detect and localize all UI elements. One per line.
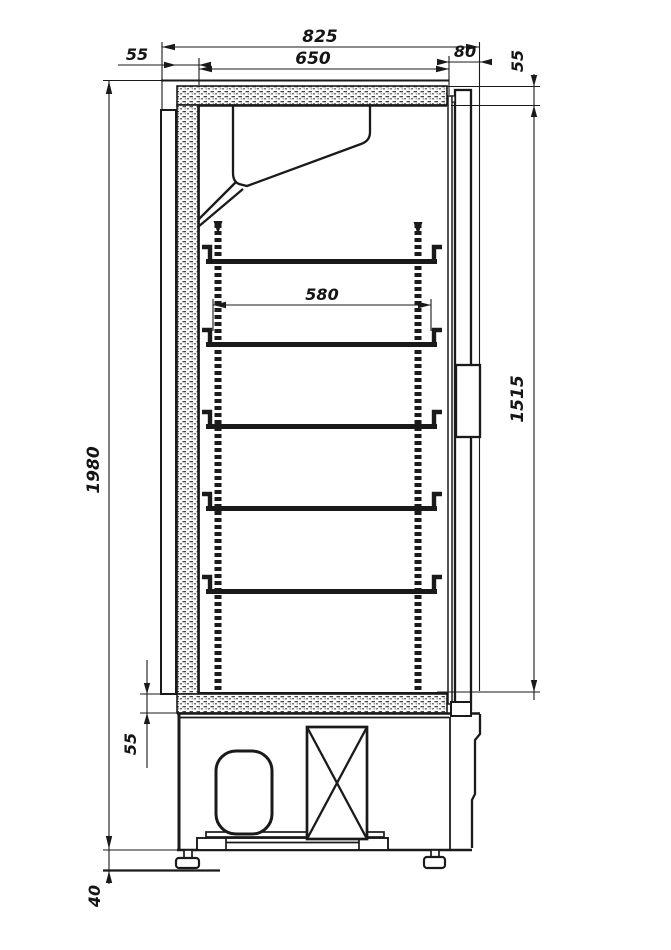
compartment-right-louver — [472, 714, 480, 848]
dim-label-overall-depth: 825 — [302, 27, 338, 47]
shelf — [202, 577, 442, 592]
shelf — [202, 412, 442, 427]
foot-pad-right — [424, 857, 445, 868]
rear-spacer-panel — [161, 110, 176, 694]
door-handle — [456, 365, 480, 437]
door-glass-pane — [448, 96, 452, 704]
dim-label-inner-depth: 650 — [295, 49, 331, 69]
dim-label-door-thickness: 80 — [454, 42, 476, 61]
adjustable-feet — [176, 850, 445, 868]
top-insulation-panel — [177, 86, 447, 105]
compressor — [216, 751, 272, 834]
dim-label-overall-height: 1980 — [84, 446, 104, 493]
condenser-fan-unit — [307, 727, 367, 839]
door-bottom-block — [451, 702, 471, 716]
door-top-step — [452, 96, 455, 102]
air-duct-outline — [233, 106, 370, 186]
cabinet-section-drawing: 825 650 55 80 55 1980 1515 580 55 40 — [0, 0, 671, 950]
foot-pad-left — [176, 858, 199, 868]
glass-door — [448, 90, 480, 716]
shelf — [202, 247, 442, 262]
shelf — [202, 330, 442, 345]
machine-compartment — [176, 713, 480, 868]
foot-stem-left — [184, 850, 192, 858]
dim-label-bottom-panel-thickness: 55 — [121, 733, 140, 755]
evaporator-duct — [198, 106, 370, 227]
dim-label-top-panel-thickness: 55 — [508, 50, 527, 72]
dim-label-foot-height: 40 — [85, 885, 104, 908]
dim-label-back-wall-thickness: 55 — [126, 45, 148, 64]
bottom-insulation-panel — [177, 694, 447, 713]
technical-drawing-canvas: 825 650 55 80 55 1980 1515 580 55 40 — [0, 0, 671, 950]
dim-label-inner-height: 1515 — [508, 375, 528, 422]
cabinet-outline — [103, 81, 480, 718]
back-wall-insulation — [177, 105, 198, 694]
shelf — [202, 494, 442, 509]
dim-label-shelf-depth: 580 — [305, 285, 338, 304]
